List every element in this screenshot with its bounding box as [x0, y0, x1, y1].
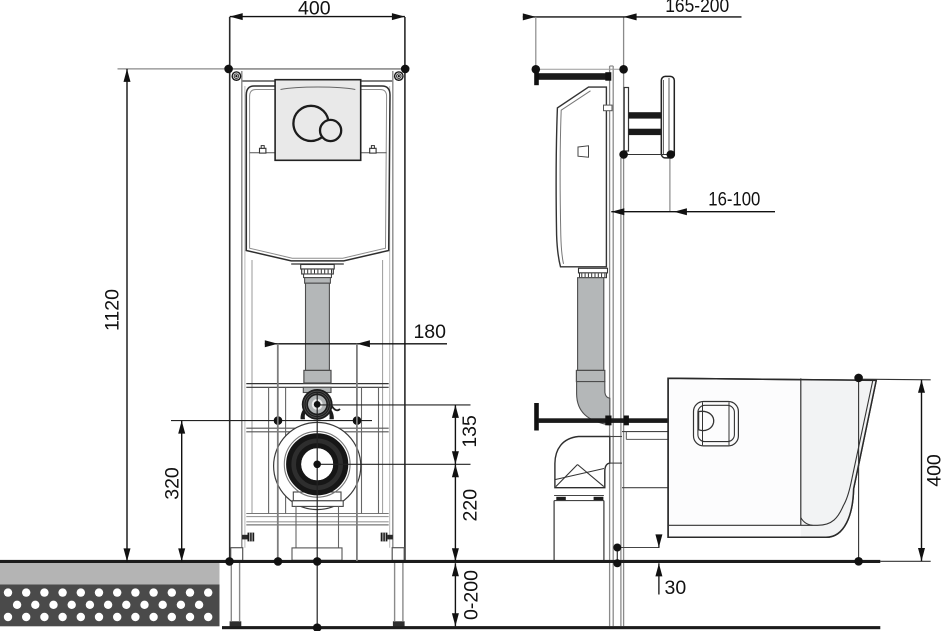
svg-text:16-100: 16-100	[708, 188, 760, 210]
svg-text:1120: 1120	[102, 289, 124, 331]
svg-text:165-200: 165-200	[665, 0, 729, 17]
svg-text:220: 220	[460, 489, 482, 522]
svg-text:30: 30	[665, 577, 687, 599]
svg-text:400: 400	[298, 0, 331, 19]
svg-text:180: 180	[413, 321, 446, 343]
svg-text:400: 400	[923, 454, 941, 487]
svg-text:320: 320	[162, 467, 184, 500]
svg-text:135: 135	[459, 415, 481, 448]
svg-text:0-200: 0-200	[460, 570, 482, 620]
